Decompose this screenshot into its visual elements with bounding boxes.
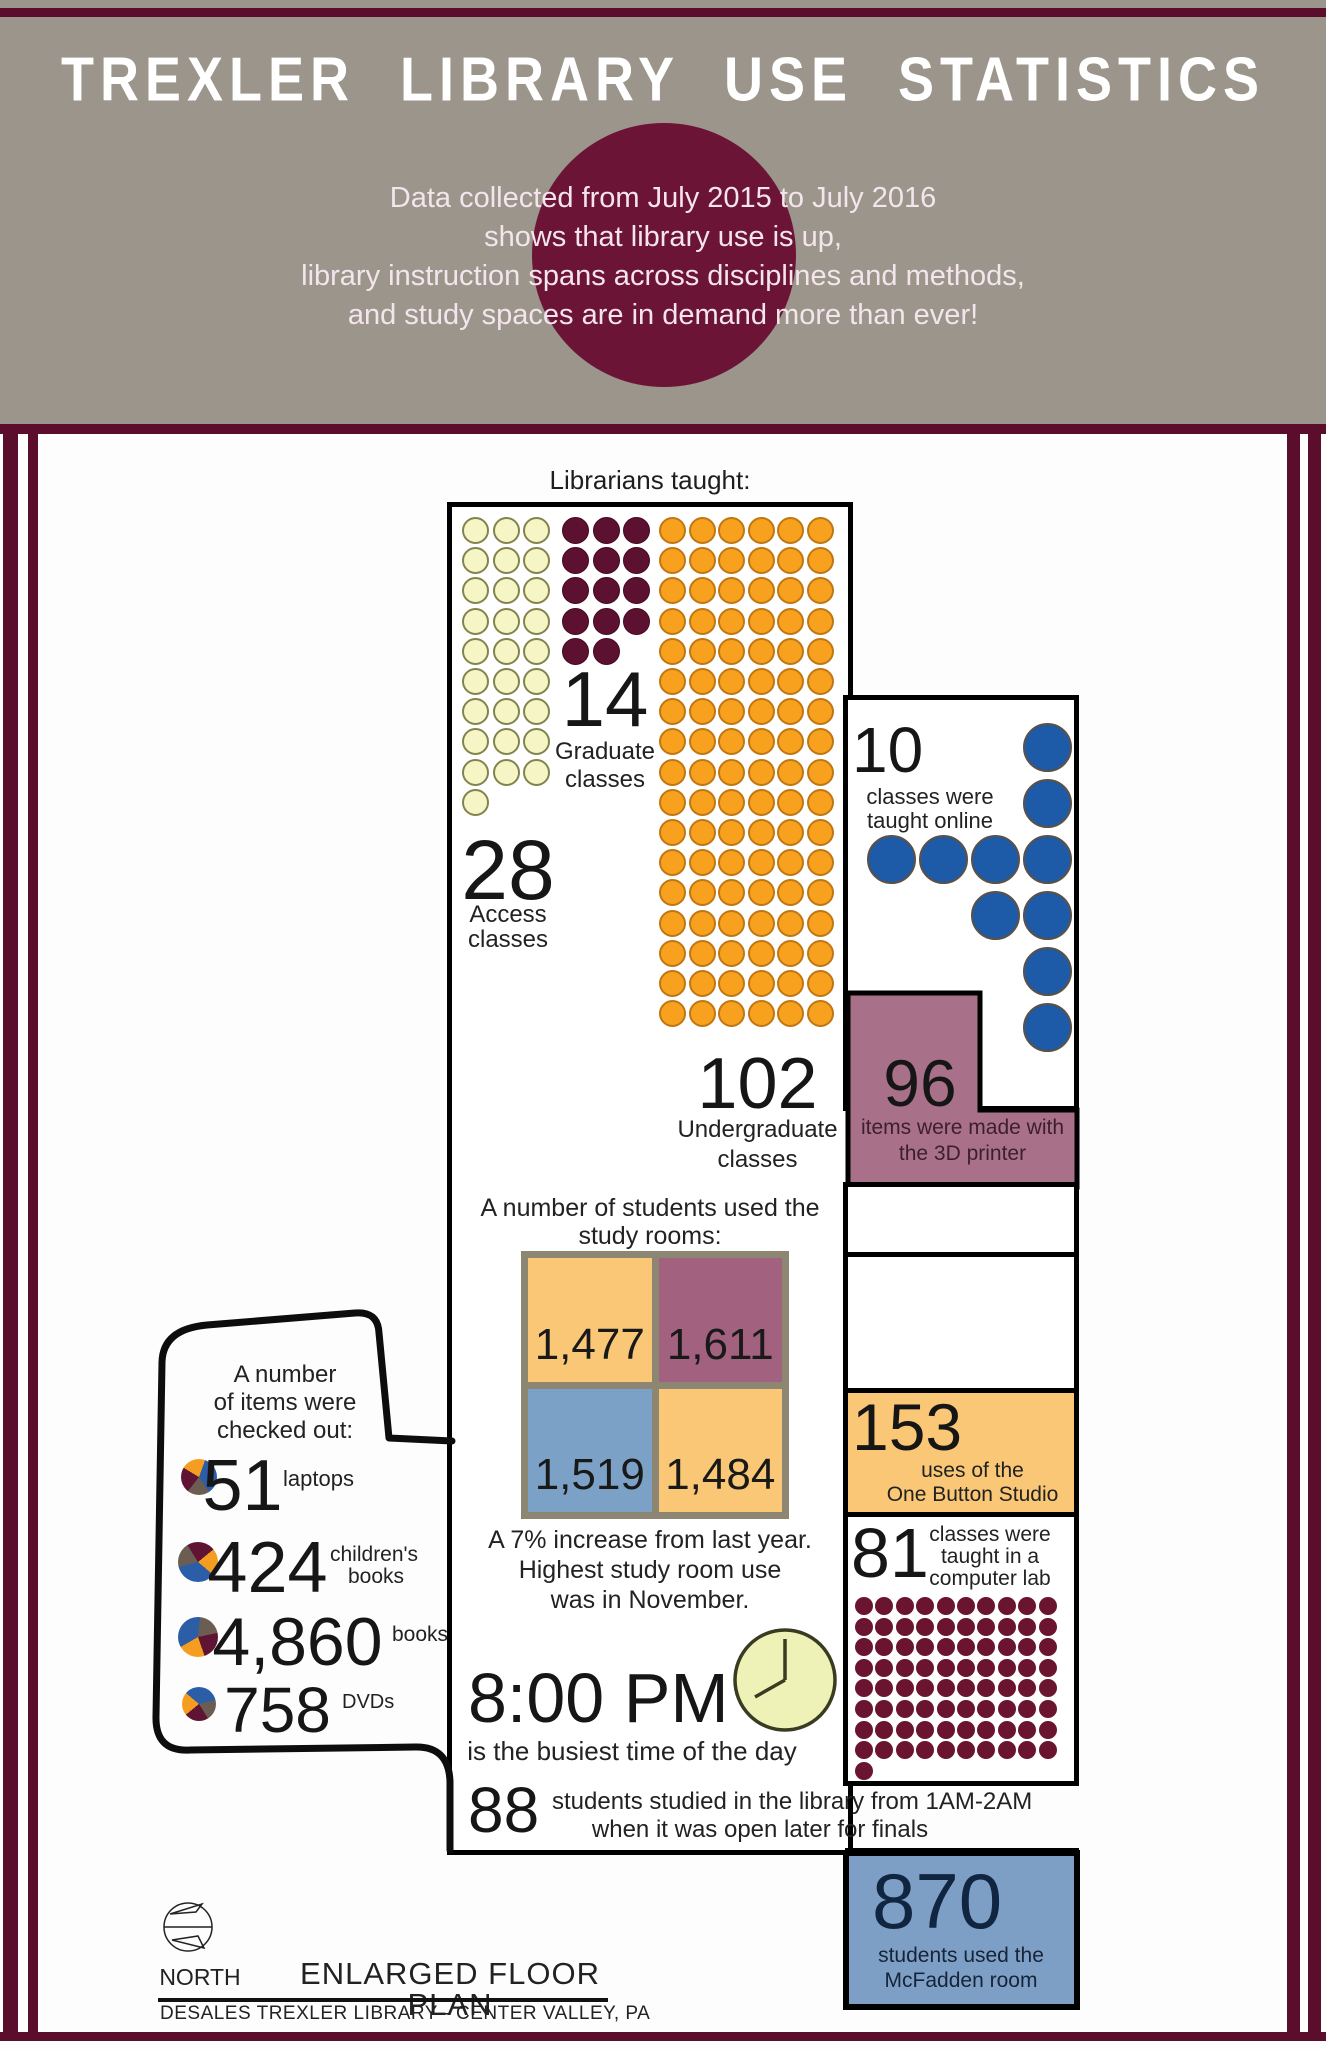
- undergraduate-class-dot: [689, 577, 716, 604]
- online-class-dot: [919, 835, 968, 884]
- access-class-dot: [493, 638, 520, 665]
- undergraduate-class-dot: [689, 668, 716, 695]
- undergraduate-class-dot: [689, 940, 716, 967]
- undergraduate-class-dot: [689, 638, 716, 665]
- undergraduate-class-dot: [748, 849, 775, 876]
- computer-lab-label-3: computer lab: [915, 1568, 1065, 1589]
- undergraduate-class-dot: [748, 698, 775, 725]
- one-button-count: 153: [852, 1394, 962, 1460]
- north-compass-icon: [160, 1896, 220, 1960]
- access-class-dot: [493, 608, 520, 635]
- undergraduate-class-dot: [718, 517, 745, 544]
- access-class-dot: [462, 608, 489, 635]
- graduate-class-dot: [593, 577, 620, 604]
- graduate-class-dot: [623, 547, 650, 574]
- online-label-2: taught online: [845, 810, 1015, 832]
- online-count: 10: [852, 718, 923, 782]
- undergraduate-class-dot: [807, 668, 834, 695]
- graduate-class-dot: [562, 608, 589, 635]
- computer-lab-dot: [998, 1721, 1016, 1739]
- graduate-label-1: Graduate: [540, 740, 670, 764]
- computer-lab-dot: [937, 1700, 955, 1718]
- graduate-count: 14: [545, 660, 665, 738]
- study-room-cell: 1,477: [528, 1258, 652, 1382]
- undergraduate-class-dot: [659, 608, 686, 635]
- access-class-dot: [523, 517, 550, 544]
- access-class-dot: [462, 517, 489, 544]
- computer-lab-dot: [1039, 1659, 1057, 1677]
- computer-lab-dot: [998, 1741, 1016, 1759]
- undergraduate-count: 102: [690, 1048, 825, 1120]
- computer-lab-dot: [1018, 1659, 1036, 1677]
- clock-icon: [731, 1626, 839, 1734]
- undergraduate-class-dot: [718, 819, 745, 846]
- access-count: 28: [448, 828, 568, 912]
- computer-lab-dot: [916, 1721, 934, 1739]
- access-class-dot: [523, 608, 550, 635]
- access-class-dot: [462, 789, 489, 816]
- undergraduate-class-dot: [689, 759, 716, 786]
- access-class-dot: [493, 728, 520, 755]
- access-class-dot: [462, 547, 489, 574]
- access-class-dot: [493, 698, 520, 725]
- access-class-dot: [462, 668, 489, 695]
- busiest-caption: is the busiest time of the day: [452, 1738, 812, 1764]
- access-class-dot: [493, 577, 520, 604]
- mcfadden-count: 870: [872, 1862, 1002, 1940]
- subtitle-line: Data collected from July 2015 to July 20…: [0, 179, 1326, 218]
- computer-lab-dot: [875, 1618, 893, 1636]
- frame-line-right-outer: [1308, 434, 1321, 2032]
- computer-lab-dot: [977, 1618, 995, 1636]
- laptops-label: laptops: [283, 1468, 354, 1490]
- computer-lab-dot: [998, 1659, 1016, 1677]
- childrens-books-count: 424: [200, 1532, 335, 1604]
- undergraduate-class-dot: [807, 759, 834, 786]
- computer-lab-dot: [998, 1700, 1016, 1718]
- computer-lab-dot: [896, 1721, 914, 1739]
- undergraduate-class-dot: [807, 547, 834, 574]
- mcfadden-label-1: students used the: [855, 1945, 1067, 1966]
- graduate-label-2: classes: [540, 768, 670, 792]
- pie-icon: [182, 1687, 216, 1721]
- computer-lab-dot: [957, 1700, 975, 1718]
- undergraduate-class-dot: [689, 910, 716, 937]
- undergraduate-class-dot: [748, 577, 775, 604]
- undergraduate-class-dot: [718, 789, 745, 816]
- computer-lab-dot: [1039, 1597, 1057, 1615]
- online-class-dot: [971, 891, 1020, 940]
- undergraduate-class-dot: [748, 910, 775, 937]
- childrens-books-label-2: books: [348, 1566, 404, 1587]
- computer-lab-dot: [1039, 1741, 1057, 1759]
- empty-room-box-2: [843, 1252, 1079, 1393]
- computer-lab-dot: [937, 1638, 955, 1656]
- undergraduate-class-dot: [689, 517, 716, 544]
- undergraduate-class-dot: [777, 759, 804, 786]
- undergraduate-class-dot: [689, 970, 716, 997]
- study-room-cell: 1,611: [659, 1258, 783, 1382]
- footer-underline: [158, 1998, 608, 2002]
- undergraduate-class-dot: [659, 547, 686, 574]
- undergraduate-class-dot: [718, 970, 745, 997]
- computer-lab-dot: [1039, 1679, 1057, 1697]
- undergraduate-class-dot: [777, 608, 804, 635]
- computer-lab-dot: [957, 1618, 975, 1636]
- online-class-dot: [971, 835, 1020, 884]
- computer-lab-dot: [855, 1618, 873, 1636]
- online-class-dot: [1023, 891, 1072, 940]
- undergraduate-class-dot: [718, 638, 745, 665]
- computer-lab-dot: [916, 1618, 934, 1636]
- access-label-2: classes: [448, 928, 568, 952]
- undergraduate-class-dot: [807, 849, 834, 876]
- computer-lab-dot: [855, 1700, 873, 1718]
- checkouts-heading-1: A number: [170, 1363, 400, 1387]
- undergraduate-class-dot: [659, 517, 686, 544]
- late-finals-label-2: when it was open later for finals: [520, 1818, 1000, 1842]
- computer-lab-dot: [1018, 1721, 1036, 1739]
- online-class-dot: [1023, 835, 1072, 884]
- subtitle-line: library instruction spans across discipl…: [0, 257, 1326, 296]
- undergraduate-class-dot: [807, 1000, 834, 1027]
- undergraduate-label-2: classes: [665, 1148, 850, 1172]
- mcfadden-label-2: McFadden room: [855, 1970, 1067, 1991]
- undergraduate-class-dot: [659, 819, 686, 846]
- undergraduate-class-dot: [807, 698, 834, 725]
- computer-lab-dot: [855, 1597, 873, 1615]
- access-class-dot: [493, 759, 520, 786]
- undergraduate-class-dot: [718, 668, 745, 695]
- header-bottom-bar: [0, 424, 1326, 434]
- undergraduate-class-dot: [689, 789, 716, 816]
- graduate-class-dot: [562, 517, 589, 544]
- computer-lab-dot: [957, 1597, 975, 1615]
- study-room-cell: 1,519: [528, 1389, 652, 1513]
- undergraduate-class-dot: [748, 940, 775, 967]
- computer-lab-dot: [998, 1597, 1016, 1615]
- undergraduate-class-dot: [659, 789, 686, 816]
- dvds-count: 758: [215, 1678, 340, 1742]
- empty-room-box-1: [843, 1182, 1079, 1257]
- computer-lab-dot: [916, 1659, 934, 1677]
- north-label: NORTH: [158, 1966, 242, 1989]
- undergraduate-class-dot: [689, 728, 716, 755]
- header-subtitle: Data collected from July 2015 to July 20…: [0, 179, 1326, 335]
- undergraduate-class-dot: [807, 940, 834, 967]
- undergraduate-class-dot: [718, 940, 745, 967]
- computer-lab-dot: [1039, 1721, 1057, 1739]
- undergraduate-class-dot: [807, 517, 834, 544]
- undergraduate-class-dot: [689, 879, 716, 906]
- computer-lab-dot: [957, 1721, 975, 1739]
- printer-3d-label-1: items were made with: [850, 1117, 1075, 1138]
- undergraduate-class-dot: [659, 940, 686, 967]
- undergraduate-class-dot: [748, 728, 775, 755]
- access-class-dot: [493, 668, 520, 695]
- printer-3d-label-2: the 3D printer: [850, 1143, 1075, 1164]
- librarians-heading: Librarians taught:: [450, 465, 850, 496]
- access-class-dot: [462, 698, 489, 725]
- undergraduate-class-dot: [659, 910, 686, 937]
- undergraduate-label-1: Undergraduate: [665, 1118, 850, 1142]
- undergraduate-class-dot: [689, 608, 716, 635]
- undergraduate-class-dot: [807, 789, 834, 816]
- study-room-note-3: was in November.: [452, 1588, 848, 1613]
- access-label-1: Access: [448, 903, 568, 927]
- computer-lab-dot: [957, 1659, 975, 1677]
- printer-3d-count: 96: [860, 1050, 980, 1116]
- online-class-dot: [867, 835, 916, 884]
- one-button-label-1: uses of the: [880, 1460, 1065, 1481]
- computer-lab-label-1: classes were: [915, 1524, 1065, 1545]
- undergraduate-class-dot: [748, 1000, 775, 1027]
- computer-lab-dot: [937, 1659, 955, 1677]
- study-room-note-2: Highest study room use: [452, 1558, 848, 1583]
- computer-lab-dot: [855, 1659, 873, 1677]
- undergraduate-class-dot: [659, 849, 686, 876]
- computer-lab-dot: [1018, 1618, 1036, 1636]
- graduate-class-dot: [593, 517, 620, 544]
- online-class-dot: [1023, 723, 1072, 772]
- undergraduate-class-dot: [689, 547, 716, 574]
- computer-lab-dot: [937, 1597, 955, 1615]
- one-button-label-2: One Button Studio: [880, 1484, 1065, 1505]
- undergraduate-class-dot: [777, 940, 804, 967]
- undergraduate-class-dot: [689, 698, 716, 725]
- online-class-dot: [1023, 779, 1072, 828]
- undergraduate-class-dot: [807, 638, 834, 665]
- undergraduate-class-dot: [807, 608, 834, 635]
- undergraduate-class-dot: [748, 638, 775, 665]
- graduate-class-dot: [593, 608, 620, 635]
- subtitle-line: and study spaces are in demand more than…: [0, 296, 1326, 335]
- online-label-1: classes were: [845, 786, 1015, 808]
- computer-lab-dot: [937, 1679, 955, 1697]
- access-class-dot: [462, 759, 489, 786]
- graduate-class-dot: [593, 547, 620, 574]
- undergraduate-class-dot: [777, 910, 804, 937]
- frame-line-right-inner: [1287, 434, 1300, 2032]
- computer-lab-dot: [896, 1597, 914, 1615]
- computer-lab-dot: [937, 1741, 955, 1759]
- computer-lab-dot: [855, 1721, 873, 1739]
- computer-lab-dot: [937, 1618, 955, 1636]
- undergraduate-class-dot: [718, 608, 745, 635]
- undergraduate-class-dot: [748, 668, 775, 695]
- computer-lab-dot: [1039, 1618, 1057, 1636]
- graduate-class-dot: [623, 517, 650, 544]
- undergraduate-class-dot: [689, 1000, 716, 1027]
- access-class-dot: [493, 547, 520, 574]
- undergraduate-class-dot: [748, 819, 775, 846]
- access-class-dot: [493, 517, 520, 544]
- undergraduate-class-dot: [718, 910, 745, 937]
- computer-lab-dot: [896, 1659, 914, 1677]
- undergraduate-class-dot: [807, 910, 834, 937]
- computer-lab-dot: [937, 1721, 955, 1739]
- undergraduate-class-dot: [748, 879, 775, 906]
- books-label: books: [392, 1624, 448, 1645]
- computer-lab-dot: [896, 1638, 914, 1656]
- computer-lab-dot: [998, 1618, 1016, 1636]
- childrens-books-label-1: children's: [330, 1544, 418, 1565]
- undergraduate-class-dot: [718, 759, 745, 786]
- computer-lab-dot: [1039, 1638, 1057, 1656]
- undergraduate-class-dot: [777, 789, 804, 816]
- undergraduate-class-dot: [748, 608, 775, 635]
- undergraduate-class-dot: [689, 849, 716, 876]
- infographic-page: TREXLER LIBRARY USE STATISTICS Data coll…: [0, 0, 1326, 2049]
- undergraduate-class-dot: [777, 638, 804, 665]
- computer-lab-dot: [855, 1762, 873, 1780]
- study-room-grid: 1,477 1,611 1,519 1,484: [521, 1251, 789, 1519]
- access-class-dot: [523, 547, 550, 574]
- computer-lab-dot: [998, 1638, 1016, 1656]
- access-class-dot: [462, 638, 489, 665]
- graduate-class-dot: [623, 608, 650, 635]
- undergraduate-class-dot: [748, 547, 775, 574]
- late-finals-label-1: students studied in the library from 1AM…: [552, 1790, 1032, 1814]
- computer-lab-dot: [896, 1700, 914, 1718]
- page-title: TREXLER LIBRARY USE STATISTICS: [0, 44, 1326, 115]
- computer-lab-dot: [977, 1721, 995, 1739]
- frame-line-bottom: [0, 2032, 1326, 2041]
- books-count: 4,860: [205, 1608, 390, 1676]
- computer-lab-dot: [1039, 1700, 1057, 1718]
- undergraduate-class-dot: [807, 819, 834, 846]
- study-rooms-heading-1: A number of students used the: [452, 1196, 848, 1221]
- study-room-note-1: A 7% increase from last year.: [452, 1528, 848, 1553]
- dvds-label: DVDs: [342, 1692, 394, 1712]
- study-rooms-heading-2: study rooms:: [452, 1224, 848, 1249]
- computer-lab-dot: [896, 1741, 914, 1759]
- computer-lab-dot: [896, 1618, 914, 1636]
- computer-lab-dot: [875, 1721, 893, 1739]
- graduate-class-dot: [562, 547, 589, 574]
- undergraduate-class-dot: [689, 819, 716, 846]
- undergraduate-class-dot: [748, 759, 775, 786]
- study-room-cell: 1,484: [659, 1389, 783, 1513]
- undergraduate-class-dot: [659, 1000, 686, 1027]
- undergraduate-class-dot: [807, 970, 834, 997]
- checkouts-heading-2: of items were: [170, 1391, 400, 1415]
- header-top-stripe: [0, 8, 1326, 17]
- subtitle-line: shows that library use is up,: [0, 218, 1326, 257]
- floor-plan-subtitle: DESALES TREXLER LIBRARY - CENTER VALLEY,…: [160, 2004, 650, 2023]
- undergraduate-class-dot: [659, 970, 686, 997]
- computer-lab-label-2: taught in a: [915, 1546, 1065, 1567]
- frame-line-left-outer: [3, 434, 18, 2032]
- busiest-time: 8:00 PM: [468, 1663, 729, 1733]
- checkouts-heading-3: checked out:: [170, 1419, 400, 1443]
- frame-line-left-inner: [28, 434, 38, 2032]
- undergraduate-class-dot: [748, 970, 775, 997]
- undergraduate-class-dot: [748, 517, 775, 544]
- undergraduate-class-dot: [748, 789, 775, 816]
